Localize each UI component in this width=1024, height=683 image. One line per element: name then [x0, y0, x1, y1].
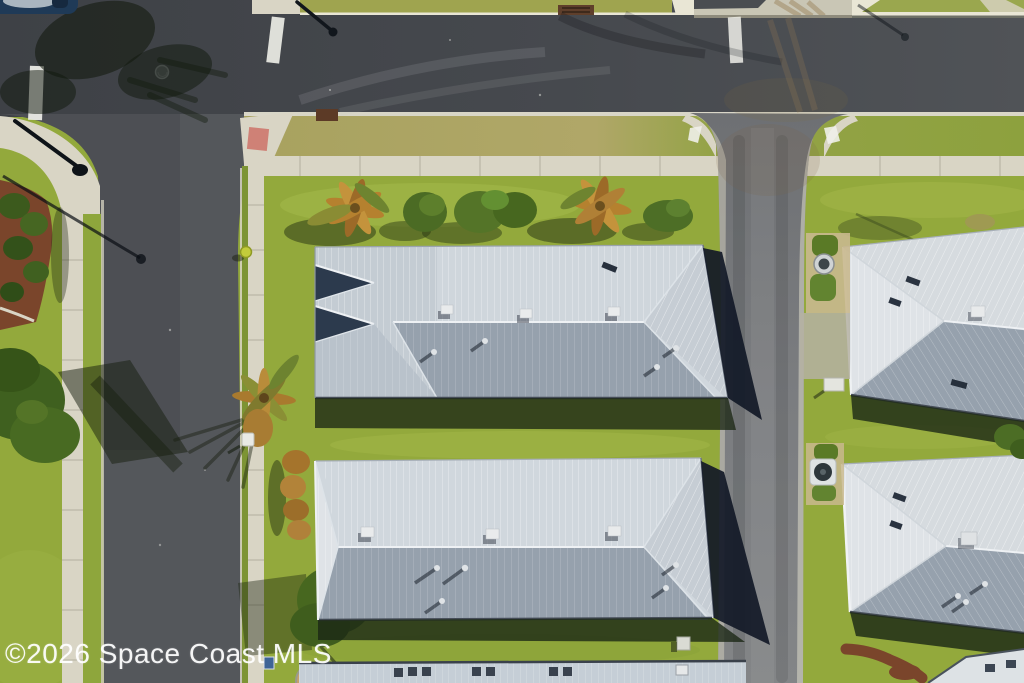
storm-grate: [316, 109, 338, 121]
house-roof-2: [315, 458, 770, 645]
car: [0, 0, 78, 14]
utility-pad: [824, 378, 844, 391]
house-1-ground-shadow: [315, 398, 736, 430]
mailbox: [242, 433, 254, 446]
hedge: [812, 235, 838, 256]
north-verge-right: [852, 0, 1024, 18]
hedge: [812, 485, 836, 501]
fire-hydrant: [241, 247, 252, 258]
tactile-ramp-mat: [247, 127, 269, 151]
south-verge-and-curb: [244, 109, 1024, 156]
aerial-photo-canvas: [0, 0, 1024, 683]
north-street-apron: [694, 0, 852, 18]
house-roof-right-b: [842, 455, 1024, 657]
aerial-photo: ©2026 Space Coast MLS: [0, 0, 1024, 683]
utility-box: [677, 637, 690, 650]
house-roof-right-a: [843, 227, 1024, 447]
hedge: [814, 444, 838, 460]
house-roof-1: [315, 245, 762, 430]
house-ra-utilities: [800, 233, 850, 398]
house-roof-3: [296, 661, 746, 683]
watermark: ©2026 Space Coast MLS: [5, 638, 332, 670]
hedge: [810, 274, 836, 301]
